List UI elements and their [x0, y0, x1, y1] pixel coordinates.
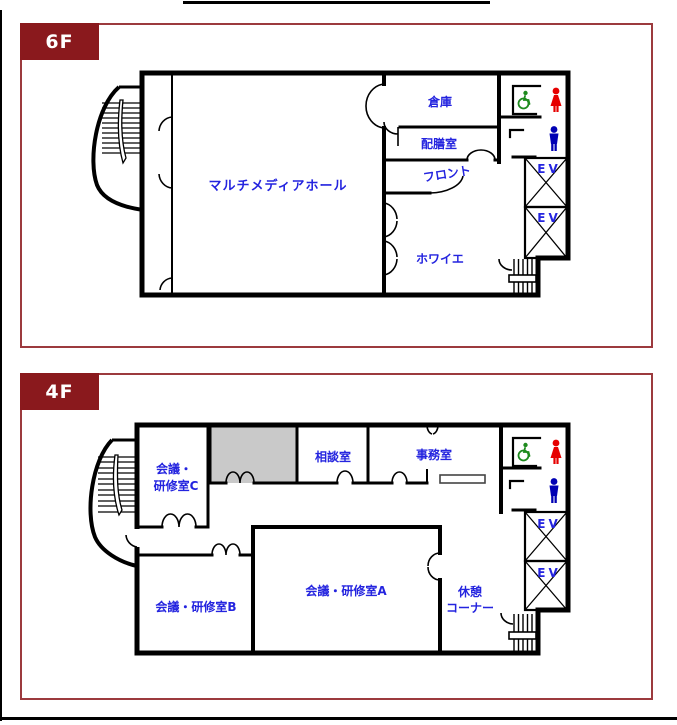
left-rule	[0, 10, 2, 721]
floor-badge-6f: 6F	[20, 23, 99, 60]
floor-badge-4f: 4F	[20, 373, 99, 410]
bottom-rule	[0, 717, 677, 720]
panel-4f: 4F	[20, 373, 653, 700]
top-rule	[183, 1, 490, 4]
panel-6f: 6F	[20, 23, 653, 348]
floor-guide-page: 6F 4F	[0, 0, 677, 725]
